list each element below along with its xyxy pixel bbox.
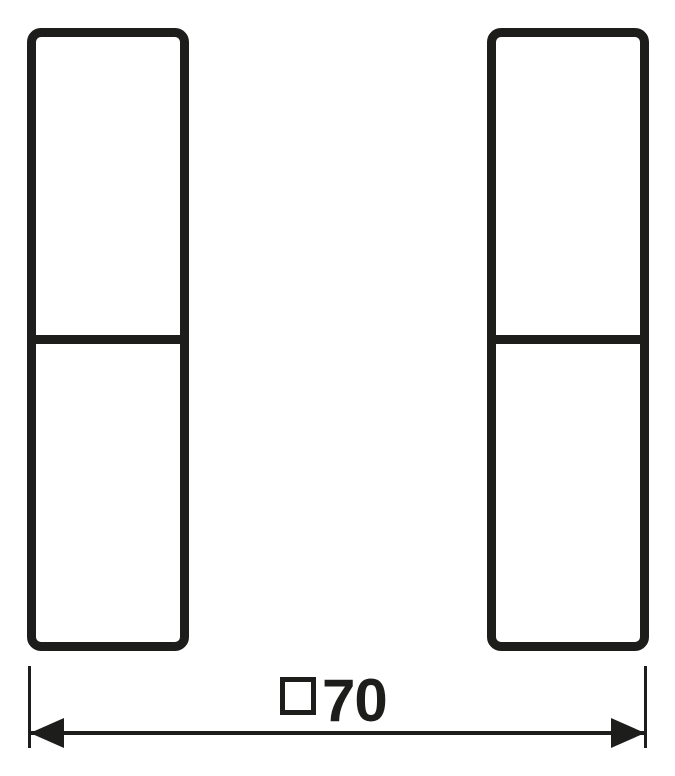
rocker-left-outline bbox=[27, 28, 189, 651]
square-symbol-icon bbox=[280, 677, 316, 715]
dimension-drawing: 70 bbox=[0, 0, 675, 776]
rocker-right-outline bbox=[487, 28, 649, 651]
dimension-value: 70 bbox=[322, 671, 387, 731]
arrowhead-left-icon bbox=[30, 718, 64, 748]
arrowhead-right-icon bbox=[611, 718, 645, 748]
dimension-label: 70 bbox=[280, 671, 387, 731]
rocker-left-divider bbox=[36, 335, 180, 344]
rocker-right-divider bbox=[496, 335, 640, 344]
